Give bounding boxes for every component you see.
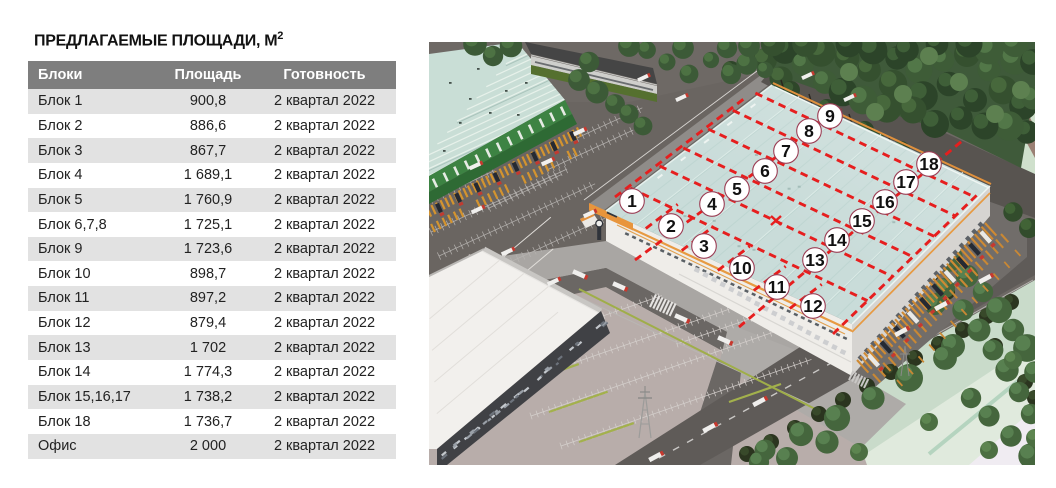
svg-text:6: 6 <box>760 161 770 181</box>
svg-text:10: 10 <box>732 258 752 278</box>
svg-text:5: 5 <box>732 179 742 199</box>
svg-text:11: 11 <box>768 277 787 297</box>
svg-text:18: 18 <box>919 154 939 174</box>
svg-text:12: 12 <box>803 296 823 316</box>
svg-text:13: 13 <box>805 250 825 270</box>
svg-text:2: 2 <box>666 216 676 236</box>
svg-text:16: 16 <box>875 192 895 212</box>
svg-text:9: 9 <box>825 106 835 126</box>
svg-text:14: 14 <box>827 230 847 250</box>
svg-text:17: 17 <box>896 172 915 192</box>
svg-text:3: 3 <box>699 236 709 256</box>
svg-text:8: 8 <box>804 121 814 141</box>
svg-text:4: 4 <box>707 194 717 214</box>
svg-text:7: 7 <box>781 141 791 161</box>
svg-text:15: 15 <box>852 211 872 231</box>
svg-text:1: 1 <box>627 191 637 211</box>
